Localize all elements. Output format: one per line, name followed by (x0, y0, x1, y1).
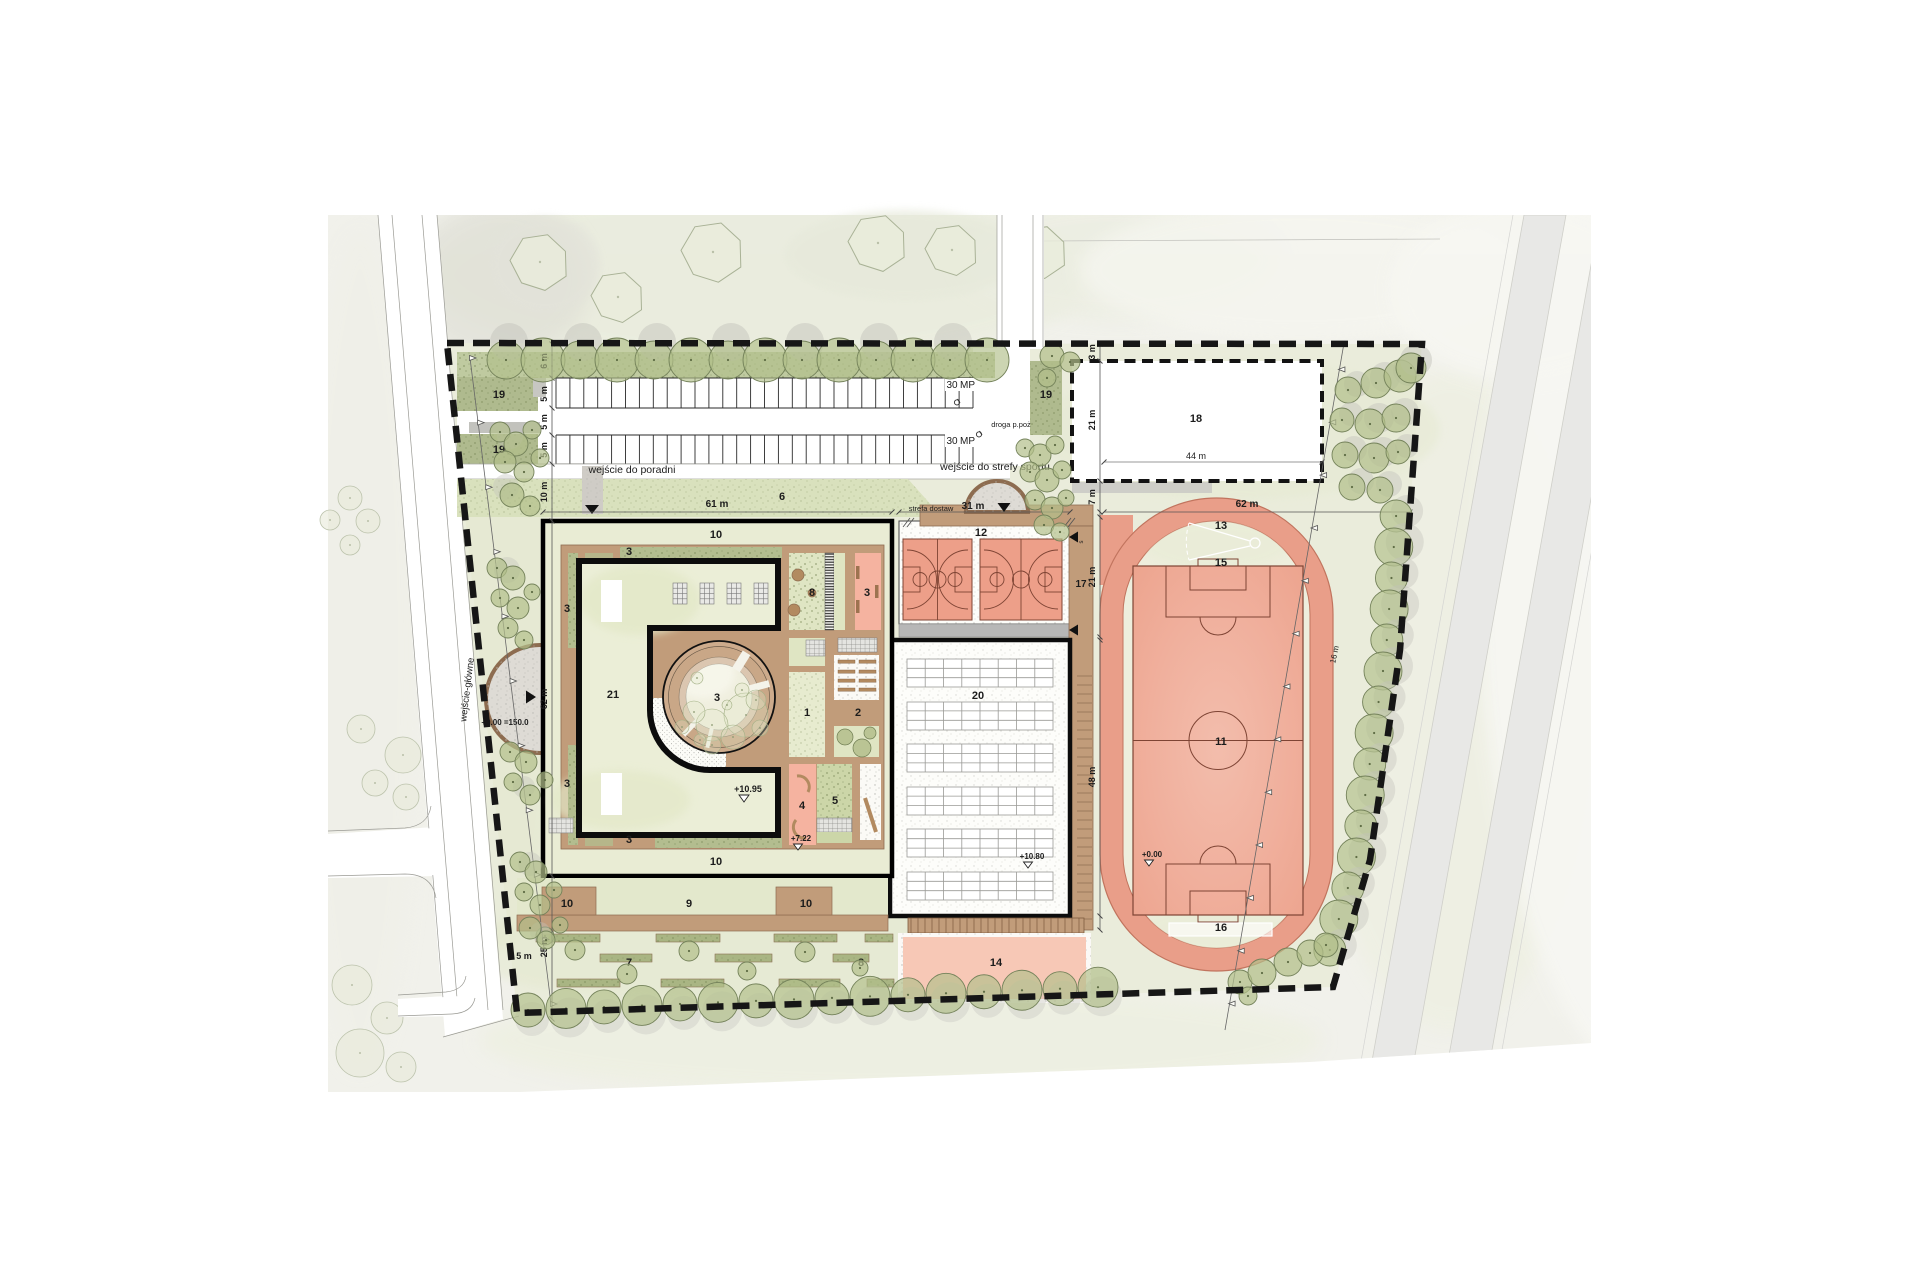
svg-text:21 m: 21 m (1087, 410, 1097, 431)
svg-text:8: 8 (809, 587, 815, 599)
svg-text:10 m: 10 m (539, 482, 549, 503)
svg-text:MP: MP (960, 380, 975, 391)
svg-text:+10.95: +10.95 (734, 784, 762, 794)
svg-text:21: 21 (607, 689, 619, 701)
svg-text:3: 3 (564, 778, 570, 790)
svg-text:6: 6 (779, 491, 785, 503)
svg-text:13: 13 (1215, 520, 1227, 532)
svg-text:3: 3 (626, 834, 632, 846)
svg-text:18: 18 (1190, 413, 1202, 425)
svg-text:12: 12 (975, 527, 987, 539)
svg-text:11: 11 (1215, 736, 1227, 748)
svg-text:3: 3 (626, 546, 632, 558)
svg-text:s: s (1079, 541, 1085, 544)
svg-text:19: 19 (493, 389, 505, 401)
svg-text:7 m: 7 m (1087, 489, 1097, 505)
svg-text:wejście do poradni: wejście do poradni (588, 464, 676, 476)
svg-text:16: 16 (1215, 922, 1227, 934)
svg-text:61 m: 61 m (706, 499, 729, 510)
svg-text:21 m: 21 m (1087, 567, 1097, 588)
svg-text:62 m: 62 m (539, 689, 549, 710)
svg-text:10: 10 (710, 529, 722, 541)
svg-text:10: 10 (710, 856, 722, 868)
svg-text:3 m: 3 m (1087, 344, 1097, 360)
svg-text:17: 17 (1075, 579, 1087, 590)
svg-text:4: 4 (799, 800, 806, 812)
svg-text:20: 20 (972, 690, 984, 702)
svg-text:5: 5 (832, 795, 838, 807)
svg-text:31 m: 31 m (962, 501, 985, 512)
svg-text:+10.80: +10.80 (1020, 852, 1045, 861)
svg-text:44 m: 44 m (1186, 451, 1206, 461)
svg-text:3: 3 (864, 587, 870, 599)
svg-text:62 m: 62 m (1236, 499, 1259, 510)
svg-text:5 m: 5 m (539, 386, 549, 402)
svg-text:10: 10 (561, 898, 573, 910)
svg-text:+0.00: +0.00 (1142, 850, 1163, 859)
svg-text:3: 3 (714, 692, 720, 704)
svg-text:2: 2 (855, 707, 861, 719)
svg-text:30: 30 (946, 436, 958, 447)
svg-text:15: 15 (1215, 557, 1227, 569)
svg-text:MP: MP (960, 436, 975, 447)
svg-text:19: 19 (1040, 389, 1052, 401)
svg-text:14: 14 (990, 957, 1003, 969)
svg-text:48 m: 48 m (1087, 767, 1097, 788)
svg-text:+7.22: +7.22 (791, 834, 812, 843)
svg-text:9: 9 (686, 898, 692, 910)
svg-text:droga p.poż: droga p.poż (991, 420, 1031, 429)
svg-text:1: 1 (804, 707, 810, 719)
svg-text:30: 30 (946, 380, 958, 391)
svg-text:3: 3 (564, 603, 570, 615)
svg-text:5 m: 5 m (516, 951, 532, 961)
svg-text:10: 10 (800, 898, 812, 910)
